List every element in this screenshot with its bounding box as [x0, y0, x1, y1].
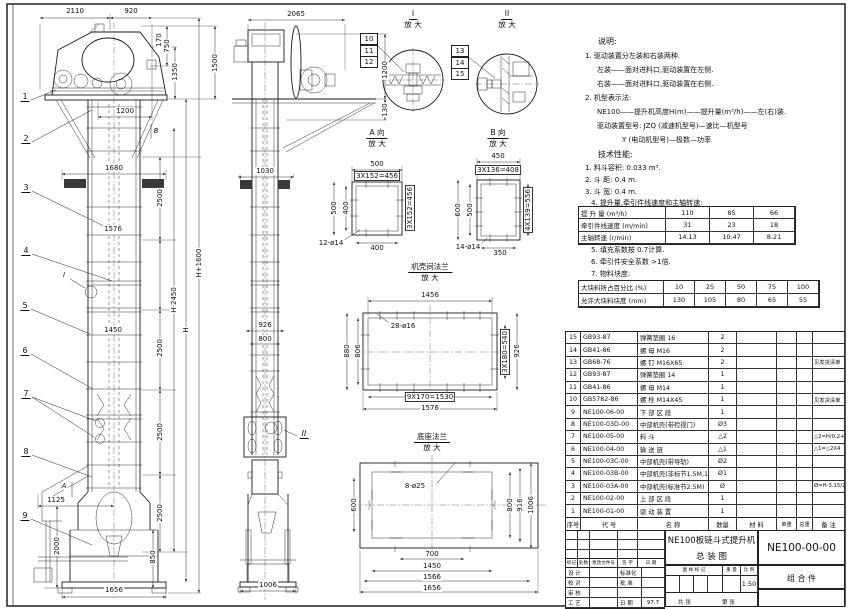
bom-remark: [813, 332, 845, 344]
note-line: 1. 驱动装置分左装和右装两种.: [585, 52, 680, 61]
dim-926: 926: [257, 321, 272, 329]
bom-total-weight: [797, 481, 813, 493]
detail-i-title: I 放 大: [404, 9, 421, 30]
bom-unit-weight: [777, 332, 797, 344]
bom-no: 5: [566, 456, 581, 468]
dim-2500-3: 2500: [156, 422, 164, 442]
bom-total-weight: [797, 444, 813, 456]
bom-total-weight: [797, 505, 813, 517]
view-a-title: A 向 放 大: [366, 128, 387, 149]
dim-a-500-top: 500: [369, 160, 384, 168]
dim-1350: 1350: [171, 62, 179, 82]
drawing-title: NE100板链斗式提升机 总 装 图: [665, 530, 758, 565]
callout-1: 1: [20, 92, 29, 102]
bom-remark: [813, 382, 845, 394]
perf-value: 31: [666, 219, 710, 231]
bom-remark: [813, 456, 845, 468]
dim-1200-side: 1200: [381, 60, 389, 80]
dim-1456: 1456: [420, 291, 440, 299]
dim-130: 130: [381, 102, 389, 117]
dim-2000: 2000: [53, 536, 61, 556]
dim-b-500: 500: [466, 202, 474, 217]
callout-14: 14: [451, 57, 469, 69]
dim-b-pitch-right: 4X139=556: [523, 187, 533, 233]
section-marker-b: B: [153, 127, 160, 135]
lump-value: 100: [788, 281, 819, 294]
drawing-title-line2: 总 装 图: [666, 549, 757, 565]
callout-7: 7: [21, 389, 30, 399]
dim-800-base: 800: [506, 497, 514, 512]
bom-name: 螺 钉 M16X65: [638, 357, 709, 369]
bom-qty: 2: [709, 344, 737, 356]
scale-value: 1:50: [741, 576, 758, 593]
bom-remark: [813, 505, 845, 517]
bom-code: NE100-03A-00: [581, 481, 638, 493]
assembly-label: 组 合 件: [759, 573, 844, 584]
perf-row-label: 主轴转速 (r/min): [579, 232, 666, 244]
bom-name: 弹簧垫圈 16: [638, 332, 709, 344]
view-b-sub: 放 大: [489, 139, 506, 148]
bom-code: GB5782-86: [581, 394, 638, 406]
dim-a-400-left: 400: [342, 200, 350, 215]
dim-750: 750: [163, 38, 171, 53]
perf-value: 18: [754, 219, 795, 231]
dim-a-pitch-right: 3X152=456: [405, 185, 415, 231]
dim-b-600: 600: [454, 202, 462, 217]
bom-code: NE100-03C-00: [581, 456, 638, 468]
bom-material: [737, 344, 777, 356]
dim-2500-2: 2500: [156, 338, 164, 358]
bom-code: NE100-02-00: [581, 493, 638, 505]
bom-name: 中部机壳(带导轨): [638, 456, 709, 468]
bom-remark: [813, 406, 845, 418]
revision-rows: [565, 530, 665, 560]
perf-row-label: 牵引件线速度 (m/min): [579, 219, 666, 231]
bom-material: [737, 481, 777, 493]
bom-name: 输 送 链: [638, 444, 709, 456]
bom-qty: Ø1: [709, 468, 737, 480]
bom-unit-weight: [777, 468, 797, 480]
callout-10: 10: [360, 33, 378, 45]
bom-name: 螺 母 M14: [638, 382, 709, 394]
callout-4: 4: [21, 246, 30, 256]
bom-remark: [813, 344, 845, 356]
spec-line: 7. 物料块度:: [591, 270, 630, 279]
section-marker-i: I: [62, 271, 66, 279]
date-label: 日 期: [618, 598, 642, 608]
bom-code: NE100-03D-00: [581, 419, 638, 431]
dim-a-holes: 12-ø14: [318, 239, 345, 247]
bom-name: 驱 动 装 置: [638, 505, 709, 517]
bom-no: 11: [566, 382, 581, 394]
sheet-number: 第 张: [722, 598, 735, 606]
bom-code: GB68-76: [581, 357, 638, 369]
drawing-title-line1: NE100板链斗式提升机: [666, 533, 757, 549]
detail-ii: [467, 54, 539, 114]
dim-b-350: 350: [492, 249, 507, 257]
sheet-row: 共 张 第 张: [665, 592, 758, 608]
bom-unit-weight: [777, 419, 797, 431]
callout-2: 2: [21, 134, 30, 144]
dim-1200: 1200: [115, 107, 135, 115]
dim-920: 920: [123, 7, 138, 15]
assembly-box: 组 合 件: [758, 565, 845, 589]
bom-material: [737, 394, 777, 406]
bom-material: [737, 382, 777, 394]
front-elevation: [31, 14, 217, 599]
bom-qty: 2: [709, 357, 737, 369]
perf-value: 23: [710, 219, 754, 231]
bom-total-weight: [797, 431, 813, 443]
bom-qty: 1: [709, 493, 737, 505]
casing-flange-sub: 放 大: [421, 273, 438, 282]
bom-unit-weight: [777, 344, 797, 356]
lump-value: 80: [726, 294, 757, 307]
date-value: 97.7: [642, 598, 665, 608]
lump-value: 55: [788, 294, 819, 307]
specs-heading: 技术性能:: [598, 150, 633, 159]
lump-size-table: 大块料所占百分比 (%) 10 25 50 75 100 允许大块料块度 (mm…: [578, 280, 820, 308]
dim-916: 916: [516, 497, 524, 512]
bom-unit-weight: [777, 369, 797, 381]
drawing-number: NE100-00-00: [759, 542, 844, 554]
bom-code: NE100-01-00: [581, 505, 638, 517]
view-a-letter: A 向: [366, 128, 387, 139]
bom-name: 中部机壳(非标节1.5M,1M): [638, 468, 709, 480]
dim-a-pitch-top: 3X152=456: [354, 171, 400, 181]
bom-total-weight: [797, 394, 813, 406]
dim-9x170: 9X170=1530: [405, 392, 455, 402]
dim-600: 600: [350, 497, 358, 512]
perf-value: 66: [754, 207, 795, 219]
dim-2065: 2065: [286, 10, 306, 18]
bom-unit-weight: [777, 406, 797, 418]
bom-code: NE100-05-00: [581, 431, 638, 443]
dim-800: 800: [257, 335, 272, 343]
lump-value: 25: [695, 281, 726, 294]
dim-a-500-left: 500: [330, 200, 338, 215]
bom-unit-weight: [777, 382, 797, 394]
notes-heading: 说明:: [598, 37, 617, 46]
review-label: 审 核: [566, 588, 590, 598]
detail-ii-title: II 放 大: [498, 9, 515, 30]
detail-i-letter: I: [409, 9, 417, 20]
dim-h-plus-1600: H+1600: [195, 248, 203, 279]
bom-no: 12: [566, 369, 581, 381]
sheets-total: 共 张: [678, 598, 691, 606]
callout-15: 15: [451, 68, 469, 80]
bom-name: 螺 母 M16: [638, 344, 709, 356]
std-label: 标准化: [618, 568, 642, 578]
lump-row-label: 允许大块料块度 (mm): [579, 294, 664, 307]
bom-qty: 1: [709, 394, 737, 406]
dim-700: 700: [424, 550, 439, 558]
detail-marker-ii: II: [300, 429, 309, 439]
bom-total-weight: [797, 419, 813, 431]
bom-no: 8: [566, 419, 581, 431]
dim-a-400-bottom: 400: [369, 244, 384, 252]
view-b-title: B 向 放 大: [487, 128, 508, 149]
bom-qty: 1: [709, 382, 737, 394]
bom-unit-weight: [777, 481, 797, 493]
dim-2500-1: 2500: [156, 188, 164, 208]
dim-1680: 1680: [104, 164, 124, 172]
dim-1450-base: 1450: [422, 562, 442, 570]
bom-name: 中部机壳(带检视门): [638, 419, 709, 431]
spec-line: 2. 斗 距: 0.4 m.: [585, 176, 637, 185]
dim-1030: 1030: [255, 167, 275, 175]
dim-1500: 1500: [211, 53, 219, 73]
bom-qty: Ø2: [709, 456, 737, 468]
bom-name: 料 斗: [638, 431, 709, 443]
perf-value: 14.13: [666, 232, 710, 244]
bom-name: 弹簧垫圈 14: [638, 369, 709, 381]
dim-1006-base: 1006: [527, 495, 535, 515]
bom-total-weight: [797, 369, 813, 381]
spec-line: 1. 料斗容积: 0.033 m³.: [585, 164, 661, 173]
bom-material: [737, 505, 777, 517]
bom-code: GB41-86: [581, 344, 638, 356]
dim-2110: 2110: [65, 7, 85, 15]
bom-qty: 1: [709, 369, 737, 381]
base-flange-name: 底座法兰: [414, 432, 450, 443]
dim-3x180: 3X180=540: [500, 329, 510, 375]
perf-value: 10.47: [710, 232, 754, 244]
bom-name: 中部机壳(标准节2.5M): [638, 481, 709, 493]
note-line: 驱动装置型号: JZQ (减速机型号)—速比—机型号: [597, 122, 748, 131]
bom-no: 4: [566, 468, 581, 480]
casing-flange-name: 机壳间法兰: [408, 262, 452, 273]
bom-no: 6: [566, 444, 581, 456]
dim-1576: 1576: [103, 225, 123, 233]
casing-flange-title: 机壳间法兰 放 大: [408, 262, 452, 283]
bom-total-weight: [797, 493, 813, 505]
detail-ii-letter: II: [502, 9, 512, 20]
bom-unit-weight: [777, 431, 797, 443]
bom-material: [737, 493, 777, 505]
bom-name: 下 部 区 段: [638, 406, 709, 418]
dim-b-holes: 14-ø14: [455, 243, 482, 251]
note-line: Y (电动机型号)—极数—功率: [622, 136, 711, 145]
bom-material: [737, 468, 777, 480]
bom-remark: [813, 493, 845, 505]
detail-ii-sub: 放 大: [498, 20, 515, 29]
spec-line: 6. 牵引件安全系数 >1倍.: [591, 258, 671, 267]
bom-code: GB41-86: [581, 382, 638, 394]
dim-8-o25: 8-ø25: [404, 482, 426, 490]
bom-code: GB93-87: [581, 369, 638, 381]
view-b-letter: B 向: [487, 128, 508, 139]
lump-value: 65: [757, 294, 788, 307]
bom-material: [737, 406, 777, 418]
callout-8: 8: [21, 447, 30, 457]
dim-b-450: 450: [490, 152, 505, 160]
bom-qty: △2: [709, 431, 737, 443]
spec-line: 3. 斗 宽: 0.4 m.: [585, 188, 637, 197]
dim-2500-4: 2500: [156, 503, 164, 523]
callout-11: 11: [360, 45, 378, 57]
bom-qty: Ø: [709, 481, 737, 493]
lump-row-label: 大块料所占百分比 (%): [579, 281, 664, 294]
bom-unit-weight: [777, 456, 797, 468]
callout-5: 5: [20, 301, 29, 311]
bom-remark: 见发货清单: [813, 357, 845, 369]
perf-value: 85: [710, 207, 754, 219]
bom-unit-weight: [777, 394, 797, 406]
bom-name: 螺 栓 M14X45: [638, 394, 709, 406]
design-label: 设 计: [566, 568, 590, 578]
check-label: 校 对: [566, 578, 590, 588]
bom-total-weight: [797, 406, 813, 418]
note-line: 左装——面对进料口,驱动装置在左侧.: [597, 66, 713, 75]
lump-value: 105: [695, 294, 726, 307]
bom-unit-weight: [777, 444, 797, 456]
detail-i-sub: 放 大: [404, 20, 421, 29]
bom-qty: Ø3: [709, 419, 737, 431]
performance-table: 提 升 量 (m³/h) 110 85 66 牵引件线速度 (m/min) 31…: [578, 206, 796, 245]
process-label: 工 艺: [566, 598, 590, 608]
bom-material: [737, 332, 777, 344]
bom-remark: △1=△2X4: [813, 444, 845, 456]
lump-value: 50: [726, 281, 757, 294]
bom-no: 9: [566, 406, 581, 418]
bom-no: 13: [566, 357, 581, 369]
bom-total-weight: [797, 357, 813, 369]
lump-value: 130: [664, 294, 695, 307]
engineering-drawing-sheet: 2110 920 170 750 1350 1500 1200 1680 250…: [0, 0, 850, 609]
bom-material: [737, 419, 777, 431]
dim-1450: 1450: [103, 326, 123, 334]
bom-code: NE100-04-00: [581, 444, 638, 456]
perf-value: 110: [666, 207, 710, 219]
bom-unit-weight: [777, 505, 797, 517]
bom-material: [737, 444, 777, 456]
bom-qty: 1: [709, 505, 737, 517]
bom-unit-weight: [777, 493, 797, 505]
dim-880: 880: [343, 343, 351, 358]
bom-remark: Ø=H-3.15/2.5: [813, 481, 845, 493]
bom-material: [737, 431, 777, 443]
dim-b-pitch-top: 3X136=408: [475, 165, 521, 175]
dim-h: H: [182, 326, 190, 333]
bom-qty: 1: [709, 406, 737, 418]
bom-material: [737, 456, 777, 468]
bom-code: NE100-06-00: [581, 406, 638, 418]
bom-no: 1: [566, 505, 581, 517]
dim-850: 850: [149, 549, 157, 564]
approve-label: 批 准: [618, 578, 642, 588]
bom-no: 3: [566, 481, 581, 493]
base-flange-sub: 放 大: [423, 443, 440, 452]
spec-line: 5. 填充系数按 0.7计算.: [591, 246, 665, 255]
drawing-number-box: NE100-00-00: [758, 530, 845, 565]
dim-28-o16: 28-ø16: [390, 322, 417, 330]
bom-name: 上 部 区 段: [638, 493, 709, 505]
lump-value: 10: [664, 281, 695, 294]
bom-total-weight: [797, 344, 813, 356]
bom-total-weight: [797, 382, 813, 394]
view-a-sub: 放 大: [368, 139, 385, 148]
bom-code: GB93-87: [581, 332, 638, 344]
dim-1566: 1566: [422, 573, 442, 581]
dim-170: 170: [155, 32, 163, 47]
dim-1576-flange: 1576: [420, 404, 440, 412]
bom-total-weight: [797, 332, 813, 344]
lump-value: 75: [757, 281, 788, 294]
bom-remark: 见发货清单: [813, 394, 845, 406]
bom-no: 14: [566, 344, 581, 356]
bom-material: [737, 369, 777, 381]
bom-no: 7: [566, 431, 581, 443]
empty-box: [758, 589, 845, 607]
bom-code: NE100-03B-00: [581, 468, 638, 480]
bom-remark: [813, 419, 845, 431]
perf-row-label: 提 升 量 (m³/h): [579, 207, 666, 219]
staff-rows: 设 计 标准化 校 对 批 准 审 核 工 艺 日 期 97.7: [565, 567, 665, 609]
bom-no: 2: [566, 493, 581, 505]
bom-total-weight: [797, 456, 813, 468]
bom-qty: △1: [709, 444, 737, 456]
base-flange-title: 底座法兰 放 大: [414, 432, 450, 453]
dim-1006: 1006: [258, 581, 278, 589]
dim-926-flange: 926: [513, 343, 521, 358]
callout-3: 3: [21, 183, 30, 193]
bom-qty: 2: [709, 332, 737, 344]
callout-12: 12: [360, 56, 378, 68]
callout-13: 13: [451, 45, 469, 57]
bom-no: 15: [566, 332, 581, 344]
callout-6: 6: [20, 346, 29, 356]
dim-1656: 1656: [104, 586, 124, 594]
bom-remark: [813, 468, 845, 480]
note-line: NE100——提升机高度H(m)——提升量(m³/h)——左(右)装.: [597, 108, 786, 117]
section-marker-a: A: [61, 482, 68, 490]
bom-no: 10: [566, 394, 581, 406]
bom-unit-weight: [777, 357, 797, 369]
dim-h-minus-2450: H-2450: [170, 286, 178, 314]
bom-total-weight: [797, 468, 813, 480]
bom-remark: △2=H/0.2+5.75: [813, 431, 845, 443]
note-line: 2. 机型表示法:: [585, 94, 631, 103]
dim-1125: 1125: [46, 496, 66, 504]
dim-806: 806: [354, 343, 362, 358]
base-flange-detail: [352, 455, 546, 594]
callout-9: 9: [20, 511, 29, 521]
dim-1656-base: 1656: [422, 584, 442, 592]
bom-table: 15 GB93-87 弹簧垫圈 16 2 14 GB41-86 螺 母 M16 …: [565, 331, 845, 519]
perf-value: 8.21: [754, 232, 795, 244]
bom-remark: [813, 369, 845, 381]
side-elevation: [232, 20, 387, 600]
bom-material: [737, 357, 777, 369]
note-line: 右装——面对进料口,驱动装置在右侧.: [597, 80, 713, 89]
